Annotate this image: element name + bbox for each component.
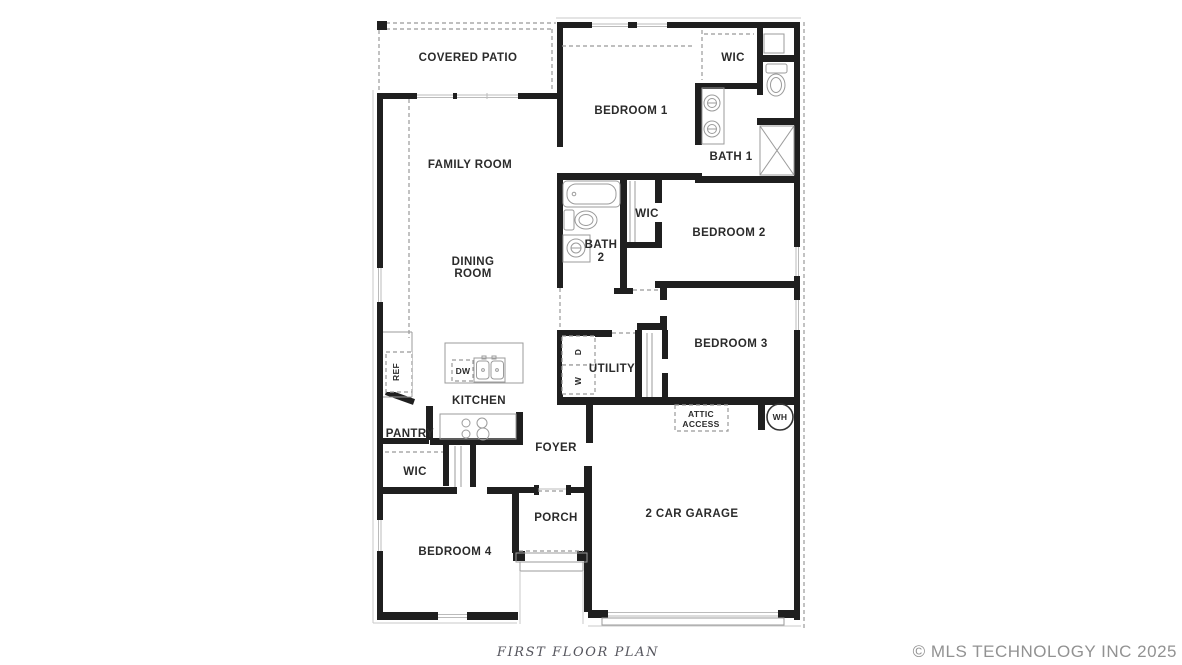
cooktop-icon [440, 414, 516, 440]
room-label-wic-3: WIC [403, 466, 427, 478]
room-label-bath-2-line2: 2 [598, 252, 605, 264]
plan-title: FIRST FLOOR PLAN [496, 645, 659, 660]
toilet-icon [564, 210, 597, 230]
patio-post [377, 21, 387, 30]
room-label-foyer: FOYER [535, 442, 577, 454]
floor-plan-canvas: COVERED PATIO BEDROOM 1 WIC BATH 1 FAMIL… [0, 0, 1182, 665]
room-label-pantry: PANTRY [386, 428, 434, 440]
room-label-dining-room: DINING [452, 256, 495, 268]
porch-steps [516, 553, 587, 624]
room-label-bedroom-1: BEDROOM 1 [594, 105, 667, 117]
room-label-bath-1: BATH 1 [709, 151, 752, 163]
watermark: © MLS TECHNOLOGY INC 2025 [913, 642, 1177, 661]
window [438, 612, 467, 620]
cabinet [764, 34, 784, 53]
room-label-bedroom-2: BEDROOM 2 [692, 227, 765, 239]
room-label-bedroom-3: BEDROOM 3 [694, 338, 767, 350]
garage-door [602, 610, 784, 625]
washer-label: W [573, 376, 583, 385]
window [377, 520, 383, 551]
room-label-wic-2: WIC [635, 208, 659, 220]
room-label-utility: UTILITY [589, 363, 635, 375]
window [794, 247, 800, 276]
room-label-family-room: FAMILY ROOM [428, 159, 512, 171]
toilet-icon [766, 64, 787, 96]
room-label-covered-patio: COVERED PATIO [419, 52, 518, 64]
footer: FIRST FLOOR PLAN © MLS TECHNOLOGY INC 20… [496, 642, 1177, 661]
walls [377, 22, 800, 620]
room-label-attic-access-line2: ACCESS [682, 419, 719, 429]
bathtub-icon [563, 181, 620, 207]
kitchen-sink-icon [474, 356, 505, 382]
room-label-attic-access: ATTIC [688, 409, 714, 419]
room-label-bath-2: BATH [585, 239, 618, 251]
window [417, 93, 453, 99]
water-heater-label: WH [773, 412, 788, 422]
kitchen-island [445, 343, 523, 383]
room-label-wic-1: WIC [721, 52, 745, 64]
window [377, 268, 383, 302]
room-label-garage: 2 CAR GARAGE [646, 508, 739, 520]
room-label-porch: PORCH [534, 512, 578, 524]
room-label-dining-room-line2: ROOM [454, 268, 491, 280]
shower-icon [760, 126, 794, 175]
window [637, 22, 667, 28]
refrigerator-label: REF [391, 363, 401, 381]
room-label-bedroom-4: BEDROOM 4 [418, 546, 491, 558]
vanity-sinks [702, 88, 724, 144]
window [794, 300, 800, 330]
window [592, 22, 628, 28]
dishwasher-label: DW [456, 366, 471, 376]
room-label-kitchen: KITCHEN [452, 395, 506, 407]
dryer-label: D [573, 349, 583, 355]
window [457, 93, 518, 99]
